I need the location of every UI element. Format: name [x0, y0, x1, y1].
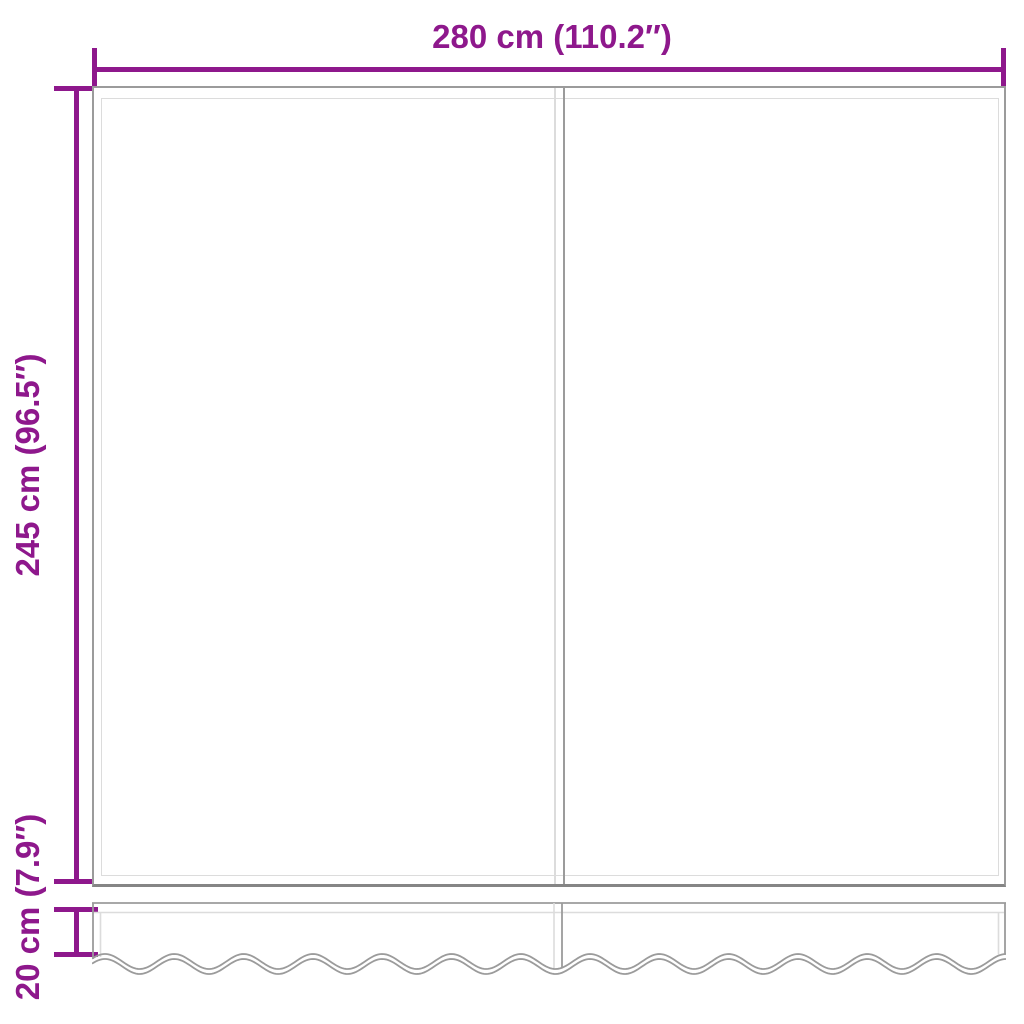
valance-dimension-line	[74, 909, 79, 954]
height-dimension-line	[74, 88, 79, 881]
fabric-main-panel	[92, 86, 1006, 887]
valance-dimension-label: 20 cm (7.9″)	[9, 814, 47, 1000]
height-dimension-label: 245 cm (96.5″)	[9, 353, 47, 576]
valance-wave-outer-line	[92, 954, 1006, 969]
awning-fabric-dimension-diagram: 280 cm (110.2″) 245 cm (96.5″) 20 cm (7.…	[0, 0, 1024, 1024]
width-dimension-label: 280 cm (110.2″)	[95, 20, 1009, 53]
center-seam-dark-line	[563, 88, 565, 884]
fabric-hem-line	[101, 98, 999, 876]
valance-svg	[92, 902, 1006, 984]
center-seam-light-line	[554, 88, 556, 884]
width-dimension-line	[95, 67, 1005, 72]
valance-wave-inner-line	[92, 959, 1006, 974]
